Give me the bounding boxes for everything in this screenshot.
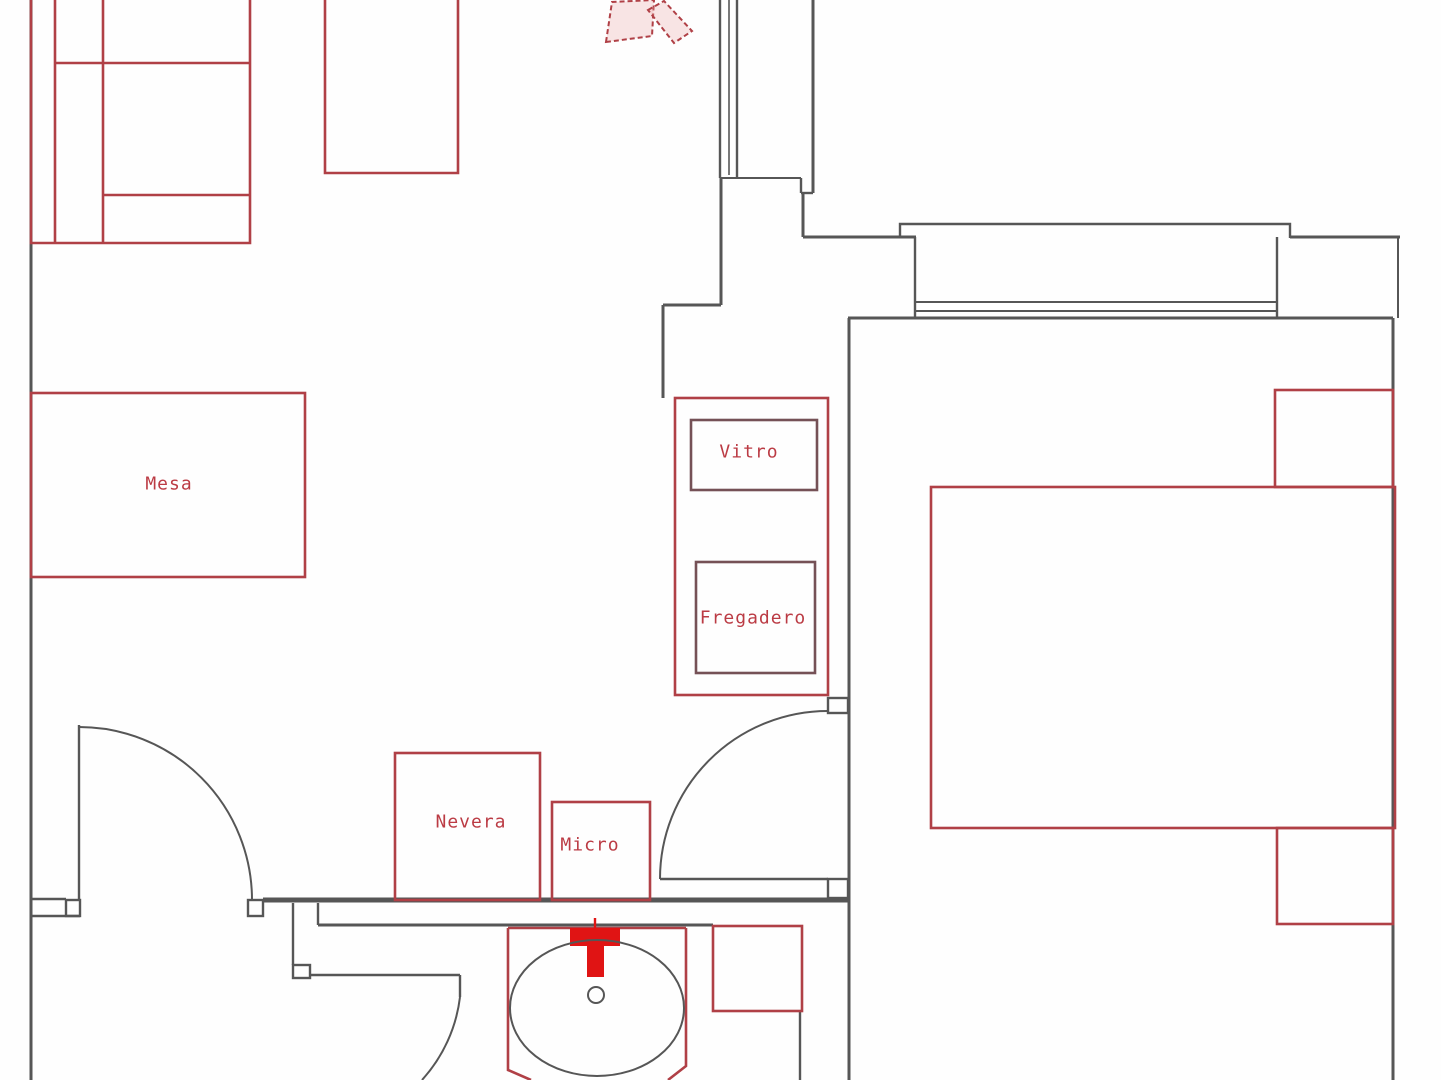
faucet-stem: [587, 946, 604, 977]
label-nevera: Nevera: [435, 812, 506, 833]
floor-plan: Mesa Vitro Fregadero Nevera Micro: [0, 0, 1441, 1080]
label-mesa: Mesa: [145, 474, 192, 495]
kitchen-door-jamb-bottom: [828, 879, 848, 898]
label-fregadero: Fregadero: [700, 608, 807, 629]
sofa-outline: [31, 0, 250, 243]
entry-object-arm: [648, 1, 692, 43]
kitchen-door-jamb-top: [828, 698, 848, 713]
living-door-jamb-right: [248, 900, 263, 916]
label-micro: Micro: [560, 835, 619, 856]
walls: [31, 0, 1400, 1080]
bath-door-jamb: [293, 965, 310, 978]
bedroom-window-outer: [900, 224, 1290, 238]
faucet-bar: [570, 928, 620, 946]
living-door-swing-arc: [79, 727, 252, 900]
floor-plan-drawing: [0, 0, 1441, 1080]
furniture: [31, 0, 1395, 1080]
living-door-jamb-left: [66, 900, 80, 916]
armchair-outline: [325, 0, 458, 173]
sink-drain: [588, 987, 604, 1003]
toilet: [713, 926, 802, 1011]
label-vitro: Vitro: [719, 442, 778, 463]
bed: [931, 487, 1395, 828]
kitchen-door-swing-arc: [660, 711, 828, 879]
nightstand-top: [1275, 390, 1393, 487]
nightstand-bottom: [1277, 828, 1393, 924]
bath-door-swing-arc: [422, 997, 460, 1080]
entry-object-body: [606, 0, 654, 42]
